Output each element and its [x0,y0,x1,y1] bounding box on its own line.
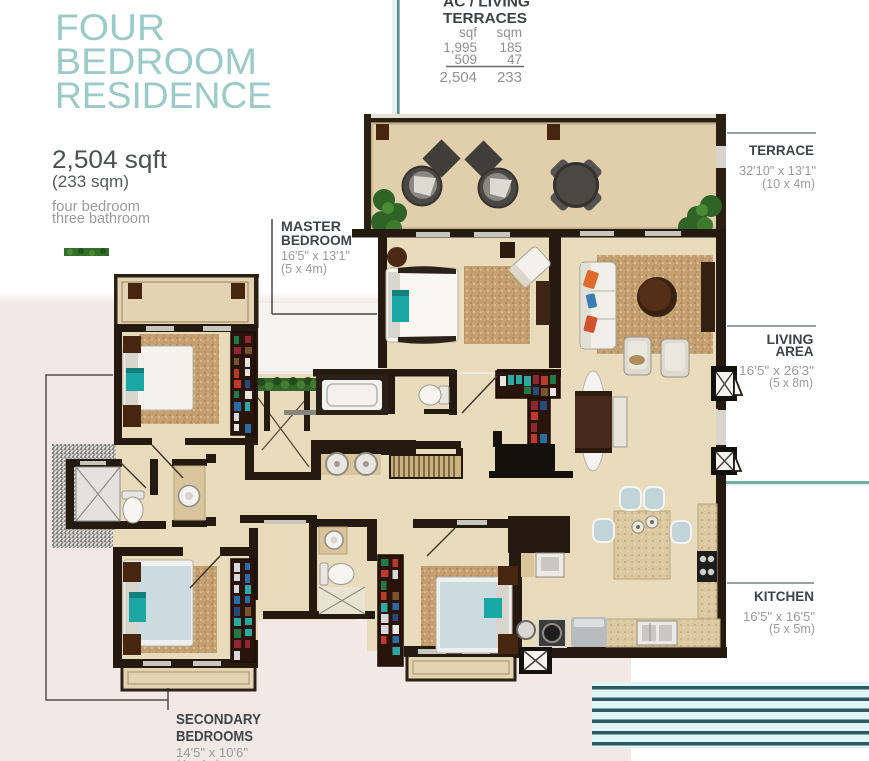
svg-text:three bathroom: three bathroom [52,211,150,227]
svg-text:KITCHEN: KITCHEN [754,588,814,604]
svg-text:509: 509 [454,52,477,67]
svg-text:BEDROOMS: BEDROOMS [176,728,253,745]
svg-text:TERRACE: TERRACE [749,142,814,158]
svg-text:AREA: AREA [776,343,814,359]
svg-text:(5 x 5m): (5 x 5m) [769,621,815,636]
svg-text:233: 233 [497,69,522,86]
svg-text:SECONDARY: SECONDARY [176,711,261,728]
svg-text:sqf: sqf [459,25,477,40]
svg-text:47: 47 [507,52,522,67]
svg-text:AC / LIVING: AC / LIVING [443,0,530,11]
svg-text:(4 x 4m): (4 x 4m) [176,757,220,761]
svg-text:(233 sqm): (233 sqm) [52,173,129,191]
svg-text:(5 x 4m): (5 x 4m) [281,261,327,276]
svg-text:(10 x 4m): (10 x 4m) [762,176,815,191]
svg-text:RESIDENCE: RESIDENCE [55,75,272,116]
svg-text:sqm: sqm [496,25,522,40]
svg-text:BEDROOM: BEDROOM [281,232,352,248]
svg-text:2,504 sqft: 2,504 sqft [52,146,167,174]
svg-text:2,504: 2,504 [439,69,477,86]
svg-text:(5 x 8m): (5 x 8m) [769,375,813,390]
